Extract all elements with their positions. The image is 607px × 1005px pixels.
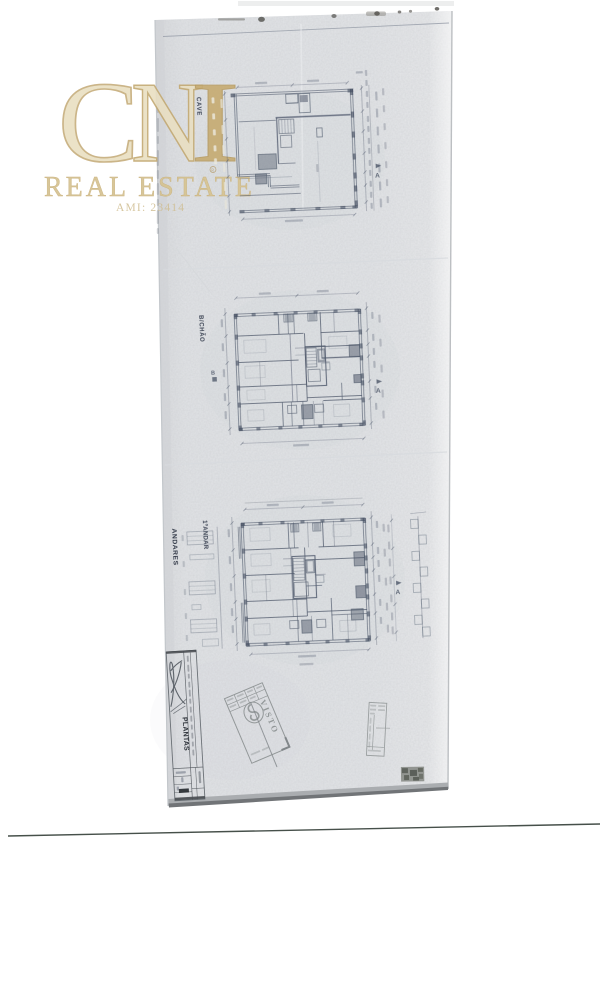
svg-text:AMI: 23414: AMI: 23414 [116,202,185,214]
svg-text:CAVE: CAVE [195,97,202,116]
svg-text:REAL ESTATE: REAL ESTATE [44,172,255,203]
svg-text:A: A [376,388,381,395]
svg-text:B: B [211,371,215,377]
svg-text:C: C [58,58,139,187]
svg-text:A: A [395,589,400,596]
svg-text:1ºANDAR: 1ºANDAR [201,520,208,550]
svg-text:B/CHÃO: B/CHÃO [197,315,205,343]
svg-text:A: A [375,172,380,179]
